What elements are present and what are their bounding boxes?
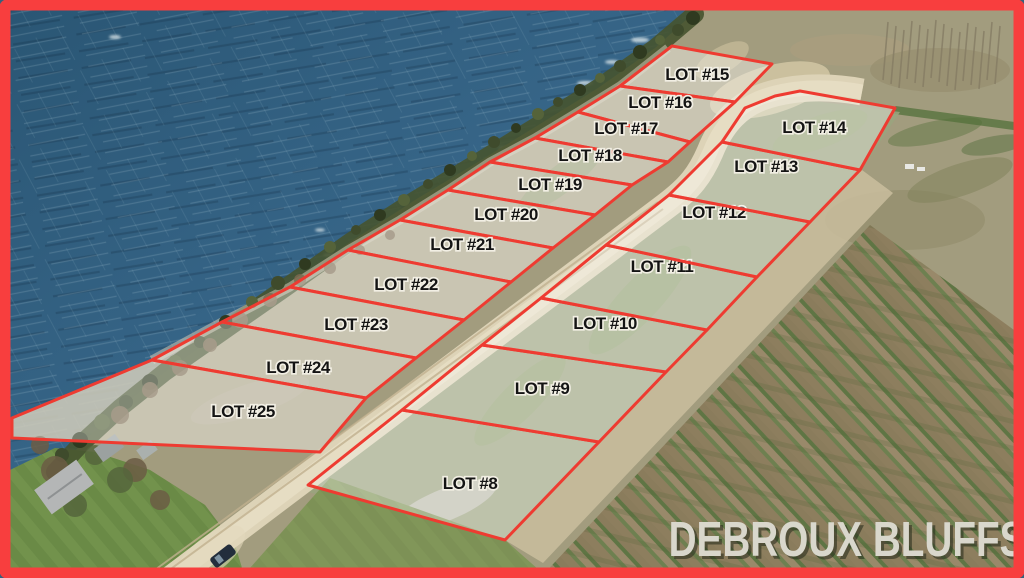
- tree: [553, 97, 563, 107]
- lot-label: LOT #25: [211, 402, 275, 421]
- lot-label: LOT #8: [443, 474, 498, 493]
- lot-label: LOT #17: [594, 119, 658, 138]
- tree: [398, 194, 410, 206]
- tree: [351, 225, 361, 235]
- title-text: DEBROUX BLUFFS: [669, 513, 1024, 567]
- tree: [686, 11, 700, 25]
- aerial-photo: LOT #8LOT #9LOT #10LOT #11LOT #12LOT #13…: [0, 0, 1024, 578]
- lot-label: LOT #10: [573, 314, 637, 333]
- tree: [614, 60, 626, 72]
- tree: [423, 179, 433, 189]
- tree: [271, 276, 285, 290]
- lot-label: LOT #21: [430, 235, 494, 254]
- development-title: DEBROUX BLUFFS DEBROUX BLUFFS: [669, 513, 1024, 570]
- lot-label: LOT #19: [518, 175, 582, 194]
- tree: [532, 108, 544, 120]
- lot-label: LOT #14: [782, 118, 847, 137]
- tree: [299, 258, 311, 270]
- tree: [633, 45, 647, 59]
- tree: [150, 490, 170, 510]
- lot-label: LOT #9: [515, 379, 570, 398]
- tree: [655, 35, 665, 45]
- tree: [595, 73, 605, 83]
- tree: [488, 136, 500, 148]
- lot-label: LOT #23: [324, 315, 388, 334]
- tree: [574, 84, 586, 96]
- lot-label: LOT #22: [374, 275, 438, 294]
- tree: [511, 123, 521, 133]
- tree: [467, 151, 477, 161]
- tree: [374, 209, 386, 221]
- lot-label: LOT #13: [734, 157, 798, 176]
- tree: [324, 241, 336, 253]
- lot-label: LOT #24: [266, 358, 331, 377]
- tree: [672, 24, 684, 36]
- listing-photo-frame: LOT #8LOT #9LOT #10LOT #11LOT #12LOT #13…: [0, 0, 1024, 578]
- lot-label: LOT #20: [474, 205, 538, 224]
- tree: [107, 467, 133, 493]
- tree: [444, 164, 456, 176]
- lot-label: LOT #16: [628, 93, 692, 112]
- lot-label: LOT #18: [558, 146, 622, 165]
- lot-label: LOT #15: [665, 65, 729, 84]
